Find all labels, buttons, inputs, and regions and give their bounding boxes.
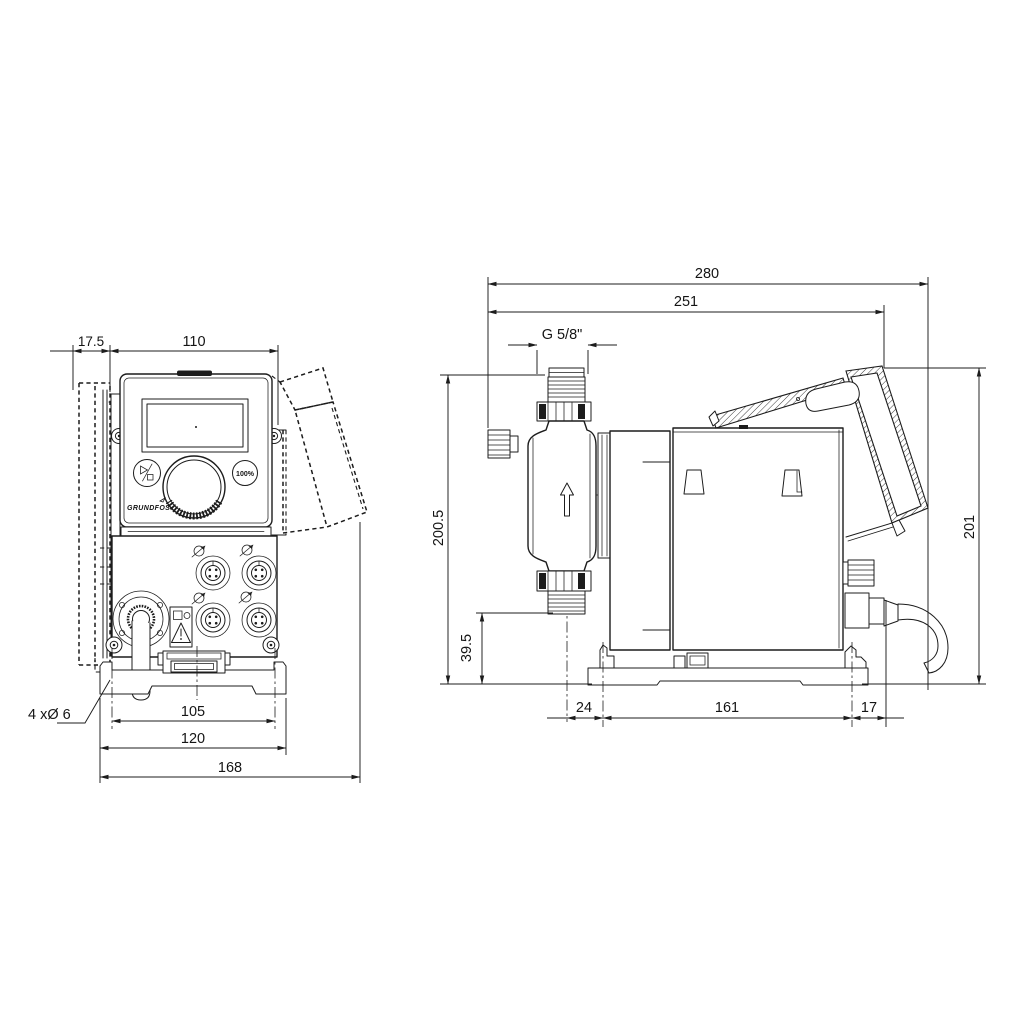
dim-label-17-5: 17.5 bbox=[78, 334, 104, 349]
top-tab bbox=[177, 371, 212, 377]
pump-head-body bbox=[528, 421, 596, 571]
click-wheel[interactable] bbox=[163, 456, 225, 518]
cover-tab bbox=[739, 425, 748, 429]
dim-label-168: 168 bbox=[218, 760, 242, 776]
control-panel: 100% GRUNDFOS bbox=[120, 371, 272, 528]
dim-label-200-5: 200.5 bbox=[431, 510, 447, 546]
dim-label-17: 17 bbox=[861, 700, 877, 716]
dimensional-drawing-page: 100% GRUNDFOS bbox=[0, 0, 1024, 1024]
dim-label-24: 24 bbox=[576, 700, 592, 716]
max-capacity-button[interactable]: 100% bbox=[233, 461, 258, 486]
drive-housing bbox=[598, 425, 843, 650]
brand-logo: GRUNDFOS bbox=[127, 505, 170, 512]
dim-label-161: 161 bbox=[715, 700, 739, 716]
dim-label-201: 201 bbox=[962, 515, 978, 539]
technical-drawing: 100% GRUNDFOS bbox=[0, 0, 1024, 1024]
start-stop-button[interactable] bbox=[134, 460, 161, 487]
dim-label-120: 120 bbox=[181, 731, 205, 747]
threaded-stub bbox=[848, 560, 874, 586]
cable-gland-block bbox=[845, 593, 869, 628]
holes-label: 4 xØ 6 bbox=[28, 707, 71, 723]
mounting-recess bbox=[684, 470, 704, 494]
baseplate-rail bbox=[158, 651, 230, 673]
dim-label-105: 105 bbox=[181, 704, 205, 720]
rating-label bbox=[170, 607, 192, 647]
thread-label: G 5/8" bbox=[542, 327, 583, 343]
max-button-label: 100% bbox=[236, 471, 255, 478]
dim-label-110: 110 bbox=[182, 334, 205, 350]
corner-screw bbox=[106, 637, 122, 653]
display bbox=[142, 399, 248, 452]
dim-label-251: 251 bbox=[674, 294, 698, 310]
corner-screw bbox=[263, 637, 279, 653]
dim-label-280: 280 bbox=[695, 266, 719, 282]
dim-label-39-5: 39.5 bbox=[459, 634, 475, 662]
